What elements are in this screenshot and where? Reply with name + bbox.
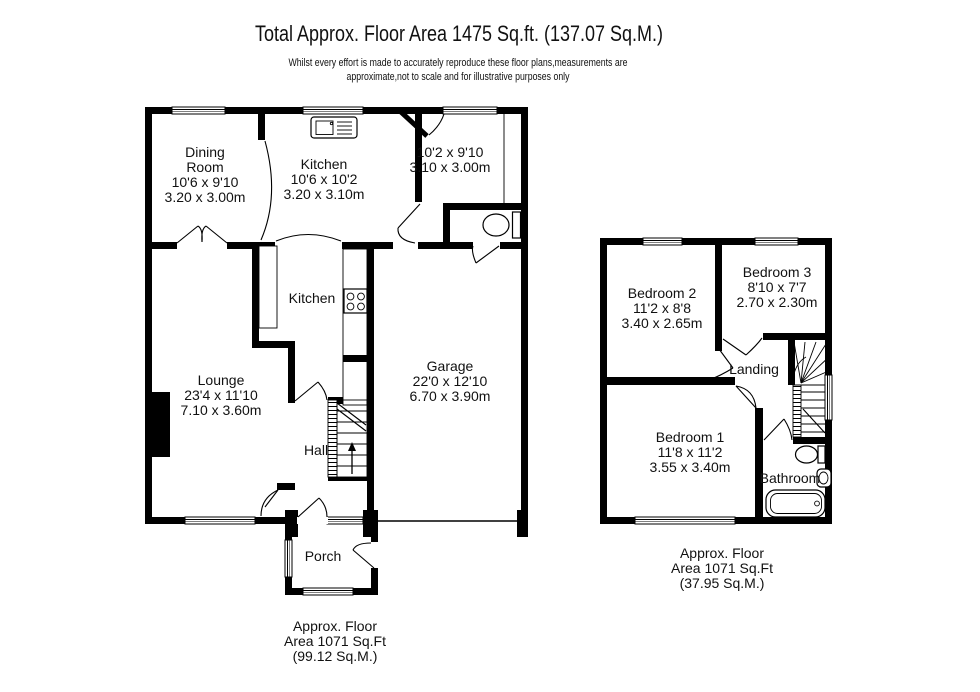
first-floor-doors: [711, 338, 792, 440]
bedroom-1-dimensions-imperial: 11'8 x 11'2: [658, 444, 723, 460]
kitchen-area-label: Kitchen: [289, 290, 336, 306]
sink-icon: [311, 117, 357, 138]
first-floor-plan: Bedroom 2 11'2 x 8'8 3.40 x 2.65m Bedroo…: [600, 238, 832, 591]
ground-floor-area-line-3: (99.12 Sq.M.): [293, 648, 378, 664]
window: [285, 540, 292, 577]
bedroom-3-dimensions-metric: 2.70 x 2.30m: [737, 294, 818, 310]
disclaimer-line-1: Whilst every effort is made to accuratel…: [289, 57, 628, 69]
first-floor-area-line-2: Area 1071 Sq.Ft: [671, 560, 773, 576]
lounge-dimensions-metric: 7.10 x 3.60m: [181, 402, 262, 418]
lounge-label: Lounge: [198, 372, 245, 388]
floorplan-image: Total Approx. Floor Area 1475 Sq.ft. (13…: [0, 0, 980, 692]
garage-dimensions-imperial: 22'0 x 12'10: [413, 373, 488, 389]
staircase-icon: [328, 400, 367, 477]
window: [825, 375, 832, 420]
window: [635, 517, 735, 524]
lounge-dimensions-imperial: 23'4 x 11'10: [184, 387, 258, 403]
dining-room-dimensions-metric: 3.20 x 3.00m: [165, 189, 246, 205]
bathtub-icon: [766, 490, 825, 517]
bedroom-1-dimensions-metric: 3.55 x 3.40m: [650, 459, 731, 475]
header: Total Approx. Floor Area 1475 Sq.ft. (13…: [255, 21, 663, 83]
bedroom-3-label: Bedroom 3: [743, 264, 812, 280]
first-floor-area-line-1: Approx. Floor: [680, 545, 764, 561]
kitchen-dimensions-imperial: 10'6 x 10'2: [291, 171, 358, 187]
bedroom-1-label: Bedroom 1: [656, 429, 725, 445]
window: [443, 107, 497, 114]
window: [327, 517, 363, 524]
ground-floor-plan: Dining Room 10'6 x 9'10 3.20 x 3.00m Kit…: [145, 107, 528, 664]
hob-icon: [344, 289, 367, 313]
window: [643, 238, 682, 245]
bathroom-label: Bathroom: [760, 470, 821, 486]
garage-label: Garage: [427, 358, 474, 374]
toilet-icon: [796, 446, 826, 463]
dining-room-label: Dining: [185, 144, 225, 160]
window: [172, 107, 225, 114]
first-floor-area-line-3: (37.95 Sq.M.): [680, 575, 765, 591]
kitchen-dimensions-metric: 3.20 x 3.10m: [284, 186, 365, 202]
kitchen-label: Kitchen: [301, 156, 348, 172]
disclaimer-line-2: approximate,not to scale and for illustr…: [347, 71, 570, 83]
page-title: Total Approx. Floor Area 1475 Sq.ft. (13…: [255, 21, 663, 46]
landing-label: Landing: [729, 361, 779, 377]
bedroom-2-dimensions-imperial: 11'2 x 8'8: [633, 300, 691, 316]
dining-room-label-2: Room: [186, 159, 223, 175]
window: [185, 517, 255, 524]
front-door-opening: [297, 517, 328, 524]
window: [755, 238, 798, 245]
dining-room-dimensions-imperial: 10'6 x 9'10: [172, 174, 239, 190]
bedroom-2-dimensions-metric: 3.40 x 2.65m: [622, 315, 703, 331]
rear-room-dimensions-imperial: 10'2 x 9'10: [417, 144, 484, 160]
rear-room-dimensions-metric: 3.10 x 3.00m: [410, 159, 491, 175]
hall-label: Hall: [304, 442, 328, 458]
chimney-breast: [145, 392, 170, 457]
bedroom-3-dimensions-imperial: 8'10 x 7'7: [747, 279, 806, 295]
toilet-icon: [483, 212, 521, 238]
ground-floor-area-line-2: Area 1071 Sq.Ft: [284, 633, 386, 649]
porch-door-opening: [371, 542, 378, 568]
kitchen-counter: [259, 246, 367, 405]
window: [303, 588, 353, 595]
ground-floor-labels: Dining Room 10'6 x 9'10 3.20 x 3.00m Kit…: [165, 144, 491, 664]
ground-floor-area-line-1: Approx. Floor: [293, 618, 377, 634]
window: [303, 107, 363, 114]
garage-dimensions-metric: 6.70 x 3.90m: [410, 388, 491, 404]
porch-label: Porch: [305, 548, 342, 564]
bedroom-2-label: Bedroom 2: [628, 285, 697, 301]
